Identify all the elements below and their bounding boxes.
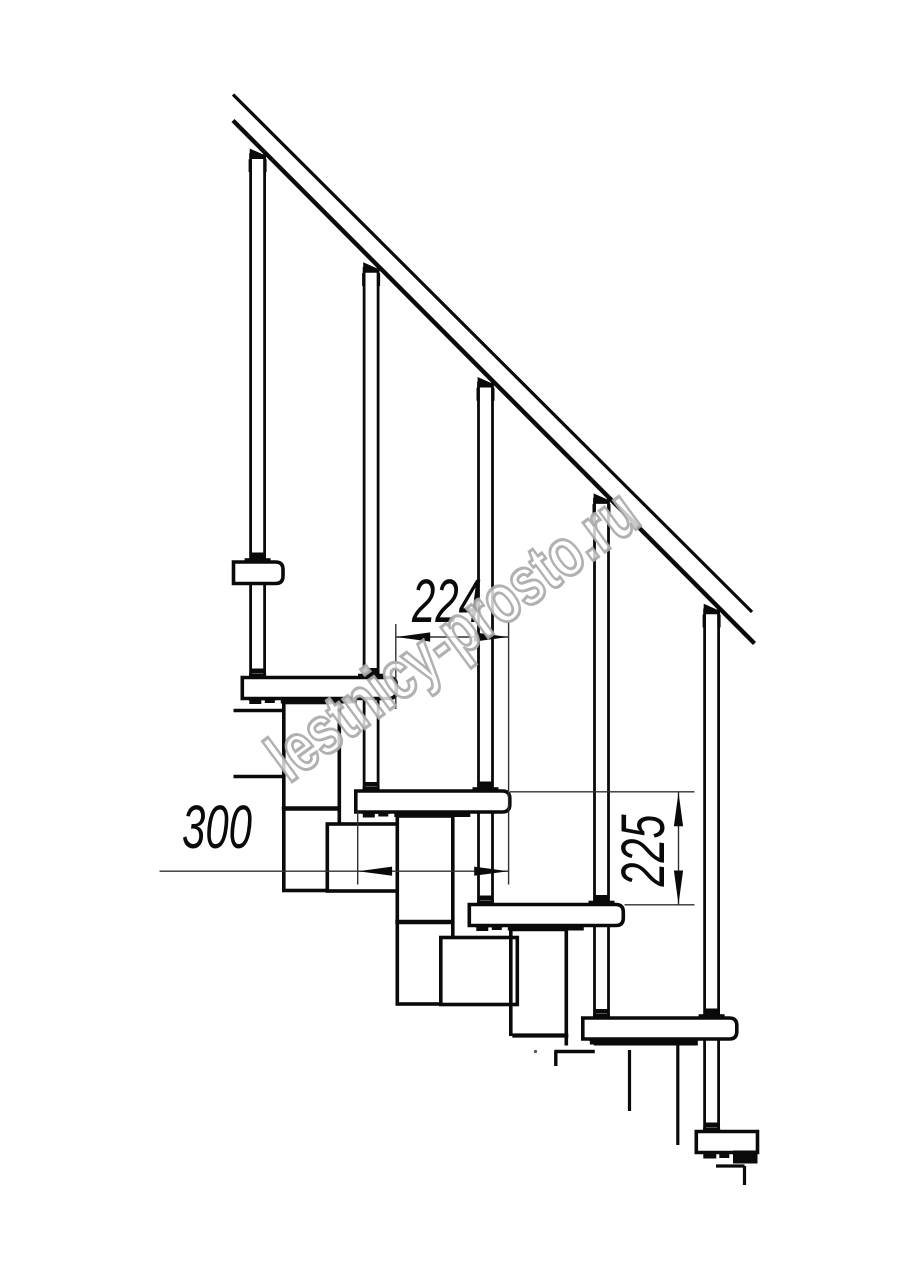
svg-text:225: 225 [609,814,677,887]
svg-text:300: 300 [182,793,252,861]
